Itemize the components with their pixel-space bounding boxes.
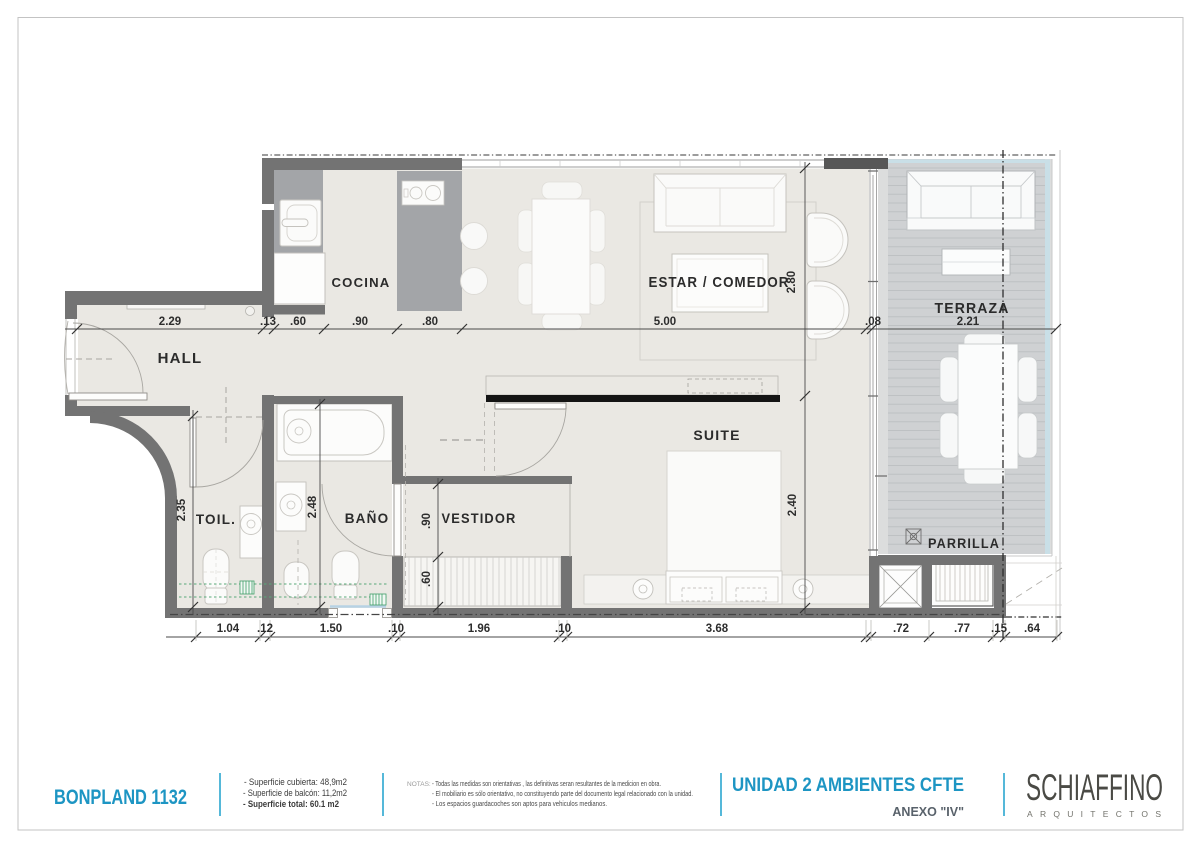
svg-text:1.96: 1.96 [468,623,490,635]
svg-text:2.21: 2.21 [957,316,980,328]
svg-text:1.04: 1.04 [217,623,240,635]
svg-text:ESTAR / COMEDOR: ESTAR / COMEDOR [649,274,790,291]
svg-text:.80: .80 [422,316,438,328]
svg-text:- Superficie de balcón: 11,2m2: - Superficie de balcón: 11,2m2 [243,788,347,799]
svg-text:.72: .72 [893,623,909,635]
svg-text:2.29: 2.29 [159,316,181,328]
svg-text:TOIL.: TOIL. [196,512,236,527]
svg-text:.13: .13 [260,316,276,328]
svg-text:2.48: 2.48 [307,495,319,518]
svg-text:- Superficie cubierta: 48,9m2: - Superficie cubierta: 48,9m2 [244,777,347,788]
svg-text:HALL: HALL [158,350,203,367]
svg-text:SUITE: SUITE [693,427,740,443]
svg-text:TERRAZA: TERRAZA [935,300,1010,317]
svg-text:UNIDAD 2 AMBIENTES CFTE: UNIDAD 2 AMBIENTES CFTE [732,774,964,796]
svg-text:- El mobiliario es sólo orien: - El mobiliario es sólo orientativo, no … [432,791,693,798]
svg-text:.60: .60 [421,571,433,587]
svg-text:.10: .10 [388,623,404,635]
svg-text:.77: .77 [954,623,970,635]
svg-text:.64: .64 [1024,623,1041,635]
svg-text:.90: .90 [352,316,368,328]
svg-text:.15: .15 [991,623,1008,635]
svg-text:- Superficie total: 60.1 m2: - Superficie total: 60.1 m2 [243,799,339,810]
svg-text:- Todas las medidas son orien: - Todas las medidas son orientativas , l… [432,781,661,788]
svg-text:COCINA: COCINA [332,275,391,290]
svg-text:SCHIAFFINO: SCHIAFFINO [1026,767,1163,808]
svg-text:.08: .08 [865,316,882,328]
svg-text:BAÑO: BAÑO [345,511,390,526]
svg-text:2.35: 2.35 [176,498,188,521]
svg-text:- Los espacios guardacoches s: - Los espacios guardacoches son aptos pa… [432,801,607,808]
svg-text:2.40: 2.40 [787,494,799,516]
svg-text:.60: .60 [290,316,306,328]
svg-text:3.68: 3.68 [706,623,729,635]
svg-text:PARRILLA: PARRILLA [928,536,1000,551]
svg-text:BONPLAND 1132: BONPLAND 1132 [54,785,187,809]
svg-text:.90: .90 [421,513,433,529]
svg-text:5.00: 5.00 [654,316,676,328]
svg-text:NOTAS:: NOTAS: [407,781,431,788]
svg-text:ANEXO "IV": ANEXO "IV" [892,805,964,819]
svg-text:VESTIDOR: VESTIDOR [442,511,517,526]
svg-text:.10: .10 [555,623,571,635]
svg-text:.12: .12 [257,623,273,635]
svg-text:1.50: 1.50 [320,623,342,635]
